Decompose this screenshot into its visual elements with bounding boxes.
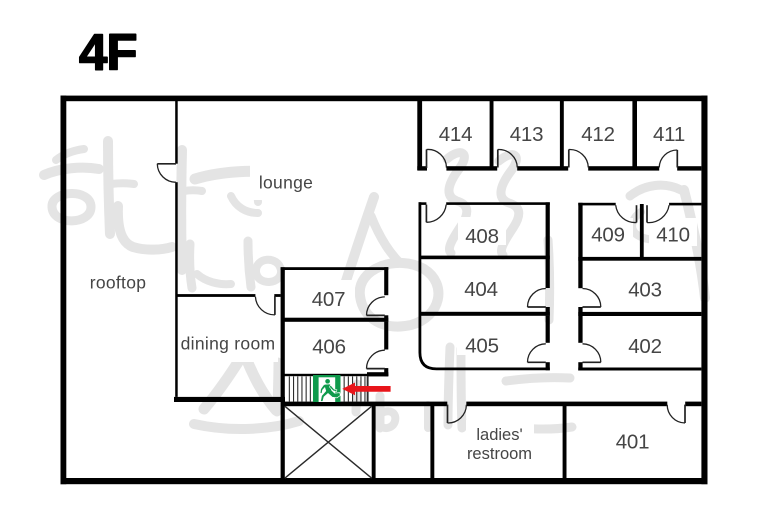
svg-text:409: 409 xyxy=(591,224,625,247)
svg-text:lounge: lounge xyxy=(259,173,313,193)
svg-text:404: 404 xyxy=(464,278,498,301)
svg-text:412: 412 xyxy=(581,123,615,146)
svg-text:403: 403 xyxy=(628,279,662,302)
svg-text:ladies': ladies' xyxy=(476,426,522,444)
svg-text:414: 414 xyxy=(439,123,473,146)
svg-text:413: 413 xyxy=(510,123,544,146)
svg-text:dining room: dining room xyxy=(181,334,276,354)
svg-text:407: 407 xyxy=(312,288,346,311)
svg-text:restroom: restroom xyxy=(467,445,532,463)
svg-text:401: 401 xyxy=(616,431,650,454)
svg-text:402: 402 xyxy=(628,335,662,358)
svg-text:rooftop: rooftop xyxy=(90,273,147,293)
svg-text:411: 411 xyxy=(653,123,685,146)
svg-text:405: 405 xyxy=(465,335,499,358)
svg-text:410: 410 xyxy=(656,224,690,247)
svg-text:406: 406 xyxy=(312,336,346,359)
svg-text:408: 408 xyxy=(465,225,499,248)
svg-text:4F: 4F xyxy=(79,24,137,81)
